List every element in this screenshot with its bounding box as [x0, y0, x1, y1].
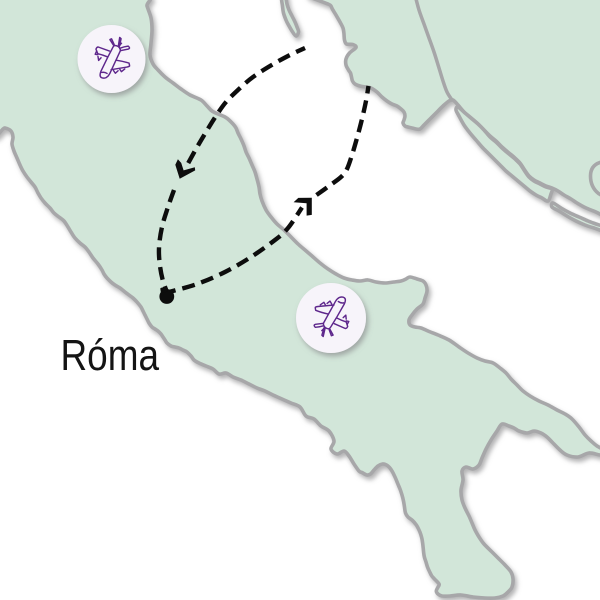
svg-text:Róma: Róma [61, 332, 160, 380]
